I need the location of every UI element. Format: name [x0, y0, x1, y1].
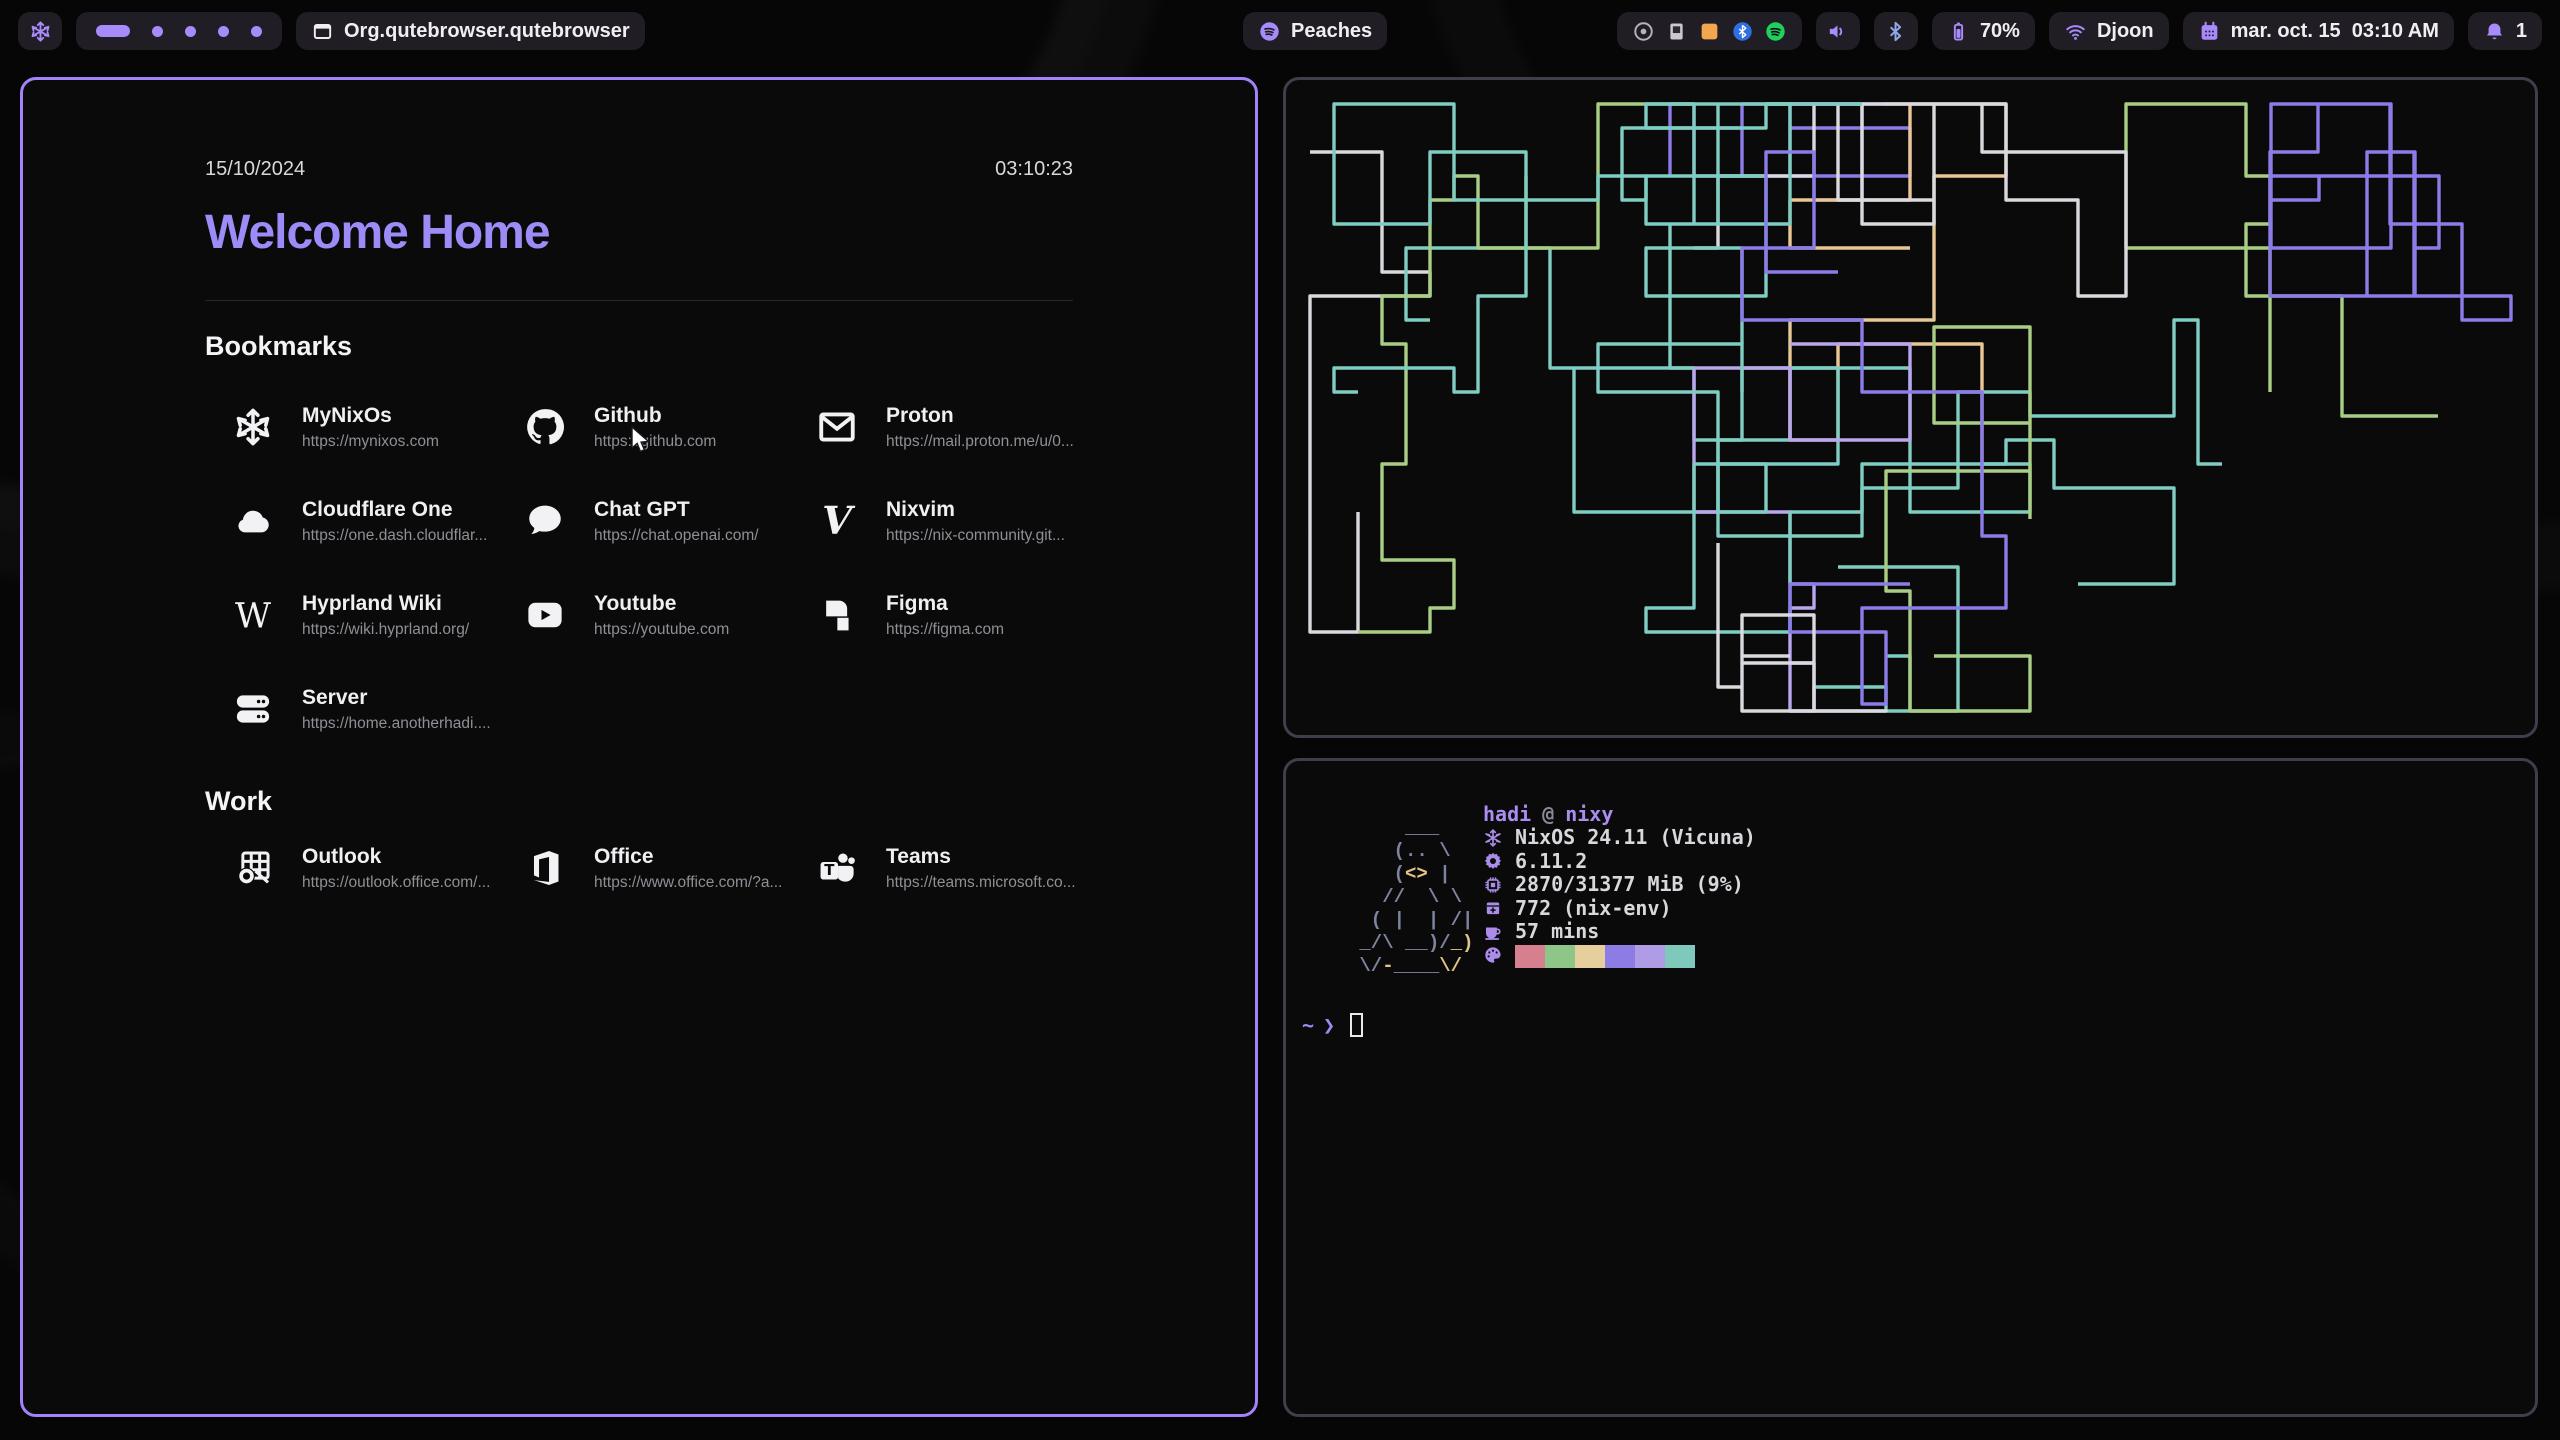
svg-text:W: W [235, 596, 271, 636]
fastfetch-palette-row [1483, 943, 1756, 966]
bookmark-url: https://figma.com [886, 621, 1004, 639]
bookmark-item[interactable]: VNixvimhttps://nix-community.git... [814, 490, 1106, 552]
snowflake-icon [1483, 828, 1504, 848]
fastfetch-ascii-art: ___ (.. \ (<> | // \ \ ( | | /| _/\ __)/… [1348, 817, 1473, 978]
bookmark-item[interactable]: TTeamshttps://teams.microsoft.co... [814, 837, 1106, 899]
window-title-pill[interactable]: Org.qutebrowser.qutebrowser [296, 12, 645, 50]
palette-swatch [1545, 945, 1575, 968]
bookmark-url: https://wiki.hyprland.org/ [302, 621, 469, 639]
bookmark-name: Hyprland Wiki [302, 591, 469, 617]
bluetooth-logo-icon[interactable] [1731, 20, 1754, 43]
spotify-logo-icon[interactable] [1764, 20, 1787, 43]
bookmark-name: Figma [886, 591, 1004, 617]
system-tray[interactable] [1617, 12, 1802, 50]
fastfetch-info: hadi@nixy NixOS 24.11 (Vicuna)6.11.22870… [1483, 803, 1756, 967]
kernel-icon [1483, 851, 1504, 871]
bookmark-item[interactable]: WHyprland Wikihttps://wiki.hyprland.org/ [230, 584, 522, 646]
startpage-dateline: 15/10/2024 03:10:23 [205, 158, 1073, 181]
palette-icon [1483, 945, 1504, 965]
terminal-user: hadi [1483, 803, 1531, 826]
bookmark-item[interactable]: Youtubehttps://youtube.com [522, 584, 814, 646]
fastfetch-row: 6.11.2 [1483, 850, 1756, 873]
startpage-time: 03:10:23 [995, 158, 1073, 181]
cloud-icon [230, 498, 276, 544]
terminal-content: ___ (.. \ (<> | // \ \ ( | | /| _/\ __)/… [1286, 761, 2535, 1414]
terminal-window[interactable]: ___ (.. \ (<> | // \ \ ( | | /| _/\ __)/… [1283, 758, 2538, 1417]
startpage-date: 15/10/2024 [205, 158, 305, 181]
bookmark-item[interactable]: Serverhttps://home.anotherhadi.... [230, 678, 522, 740]
fastfetch-row: 2870/31377 MiB (9%) [1483, 873, 1756, 896]
fastfetch-row: NixOS 24.11 (Vicuna) [1483, 826, 1756, 849]
page-title: Welcome Home [205, 205, 1073, 260]
palette-swatch [1515, 945, 1545, 968]
palette-swatch [1575, 945, 1605, 968]
bookmark-name: Server [302, 685, 491, 711]
calendar-icon [2198, 20, 2221, 43]
terminal-host: nixy [1565, 803, 1613, 826]
youtube-icon [522, 592, 568, 638]
network-ssid: Djoon [2097, 20, 2154, 43]
bookmark-name: Github [594, 403, 716, 429]
shell-prompt[interactable]: ~ ❯ [1302, 1013, 1363, 1037]
notification-count: 1 [2516, 20, 2527, 43]
terminal-cursor [1350, 1013, 1363, 1037]
teams-icon: T [814, 845, 860, 891]
top-bar: Org.qutebrowser.qutebrowser Peaches 70% … [0, 0, 2560, 62]
bookmark-url: https://www.office.com/?a... [594, 874, 782, 892]
bookmark-name: Chat GPT [594, 497, 759, 523]
packages-icon [1483, 898, 1504, 918]
bell-icon [2483, 20, 2506, 43]
bookmark-url: https://home.anotherhadi.... [302, 715, 491, 733]
startpage-content: 15/10/2024 03:10:23 Welcome Home Bookmar… [205, 80, 1073, 899]
workspace-dot[interactable] [152, 26, 163, 37]
outlook-icon [230, 845, 276, 891]
palette-swatch [1665, 945, 1695, 968]
startpage-window: 15/10/2024 03:10:23 Welcome Home Bookmar… [20, 77, 1258, 1417]
bookmark-name: Outlook [302, 844, 490, 870]
figma-icon [814, 592, 860, 638]
bookmark-url: https://chat.openai.com/ [594, 527, 759, 545]
bookmark-item[interactable]: Githubhttps://github.com [522, 396, 814, 458]
bookmark-name: Teams [886, 844, 1076, 870]
bluetooth-button[interactable] [1874, 12, 1918, 50]
bookmark-item[interactable]: Protonhttps://mail.proton.me/u/0... [814, 396, 1106, 458]
bookmark-url: https://mail.proton.me/u/0... [886, 433, 1074, 451]
nixos-logo-icon [29, 20, 52, 43]
media-icon [1258, 20, 1281, 43]
work-grid: Outlookhttps://outlook.office.com/...Off… [230, 837, 1073, 899]
uptime-icon [1483, 922, 1504, 942]
palette-swatch [1635, 945, 1665, 968]
bookmark-url: https://github.com [594, 433, 716, 451]
prompt-symbol: ❯ [1323, 1013, 1335, 1037]
fastfetch-value: 2870/31377 MiB (9%) [1515, 873, 1744, 896]
bookmark-item[interactable]: MyNixOshttps://mynixos.com [230, 396, 522, 458]
memory-icon [1483, 875, 1504, 895]
bookmark-name: Youtube [594, 591, 729, 617]
media-player-pill[interactable]: Peaches [1243, 12, 1387, 50]
disc-icon[interactable] [1632, 20, 1655, 43]
nixvim-v-icon: V [814, 498, 860, 544]
speaker-icon [1826, 20, 1849, 43]
svg-text:T: T [824, 861, 835, 879]
bookmark-url: https://outlook.office.com/... [302, 874, 490, 892]
fastfetch-user-host: hadi@nixy [1483, 803, 1756, 826]
palette-swatch [1605, 945, 1635, 968]
topbar-left: Org.qutebrowser.qutebrowser [18, 12, 645, 50]
workspace-dot[interactable] [251, 26, 262, 37]
battery-icon [1947, 20, 1970, 43]
window-icon [311, 20, 334, 43]
window-title: Org.qutebrowser.qutebrowser [344, 20, 630, 43]
applet-icon[interactable] [1665, 20, 1688, 43]
battery-pill[interactable]: 70% [1932, 12, 2035, 50]
github-icon [522, 404, 568, 450]
media-track-label: Peaches [1291, 20, 1372, 43]
pipes-window [1283, 77, 2538, 738]
bookmark-name: Proton [886, 403, 1074, 429]
bookmark-url: https://one.dash.cloudflar... [302, 527, 487, 545]
nix-icon [230, 404, 276, 450]
workspace-dot[interactable] [185, 26, 196, 37]
fastfetch-row: 772 (nix-env) [1483, 897, 1756, 920]
topbar-right: 70% Djoon mar. oct. 15 03:10 AM 1 [1617, 12, 2542, 50]
volume-button[interactable] [1816, 12, 1860, 50]
orange-app-icon[interactable] [1698, 20, 1721, 43]
workspace-dot[interactable] [218, 26, 229, 37]
bookmark-url: https://youtube.com [594, 621, 729, 639]
divider [205, 300, 1073, 301]
terminal-color-palette [1515, 945, 1695, 968]
bookmark-url: https://teams.microsoft.co... [886, 874, 1076, 892]
wifi-icon [2064, 20, 2087, 43]
fastfetch-rows: NixOS 24.11 (Vicuna)6.11.22870/31377 MiB… [1483, 826, 1756, 943]
fastfetch-value: 772 (nix-env) [1515, 897, 1672, 920]
network-pill[interactable]: Djoon [2049, 12, 2169, 50]
chat-bubble-icon [522, 498, 568, 544]
terminal-at: @ [1542, 803, 1554, 826]
bookmark-item[interactable]: Officehttps://www.office.com/?a... [522, 837, 814, 899]
fastfetch-value: 57 mins [1515, 920, 1599, 943]
nixos-launcher-button[interactable] [18, 12, 62, 50]
bookmark-url: https://nix-community.git... [886, 527, 1065, 545]
bookmark-name: Nixvim [886, 497, 1065, 523]
wiki-w-icon: W [230, 592, 276, 638]
prompt-cwd: ~ [1302, 1013, 1314, 1037]
bluetooth-icon [1884, 20, 1907, 43]
server-icon [230, 686, 276, 732]
work-heading: Work [205, 786, 1073, 817]
fastfetch-row: 57 mins [1483, 920, 1756, 943]
clock-text: mar. oct. 15 03:10 AM [2231, 20, 2439, 43]
bookmarks-heading: Bookmarks [205, 331, 1073, 362]
office-icon [522, 845, 568, 891]
envelope-icon [814, 404, 860, 450]
workspace-active[interactable] [96, 25, 130, 37]
bookmark-item[interactable]: Chat GPThttps://chat.openai.com/ [522, 490, 814, 552]
bookmark-item[interactable]: Cloudflare Onehttps://one.dash.cloudflar… [230, 490, 522, 552]
fastfetch-value: 6.11.2 [1515, 850, 1587, 873]
bookmark-url: https://mynixos.com [302, 433, 439, 451]
bookmark-item[interactable]: Figmahttps://figma.com [814, 584, 1106, 646]
workspaces[interactable] [76, 12, 282, 50]
battery-percent: 70% [1980, 20, 2020, 43]
svg-text:V: V [822, 500, 856, 542]
bookmark-name: Office [594, 844, 782, 870]
bookmarks-grid: MyNixOshttps://mynixos.comGithubhttps://… [230, 396, 1073, 740]
pipes-art [1286, 80, 2535, 735]
clock-pill[interactable]: mar. oct. 15 03:10 AM [2183, 12, 2454, 50]
bookmark-name: MyNixOs [302, 403, 439, 429]
notifications-pill[interactable]: 1 [2468, 12, 2542, 50]
bookmark-name: Cloudflare One [302, 497, 487, 523]
bookmark-item[interactable]: Outlookhttps://outlook.office.com/... [230, 837, 522, 899]
fastfetch-value: NixOS 24.11 (Vicuna) [1515, 826, 1756, 849]
